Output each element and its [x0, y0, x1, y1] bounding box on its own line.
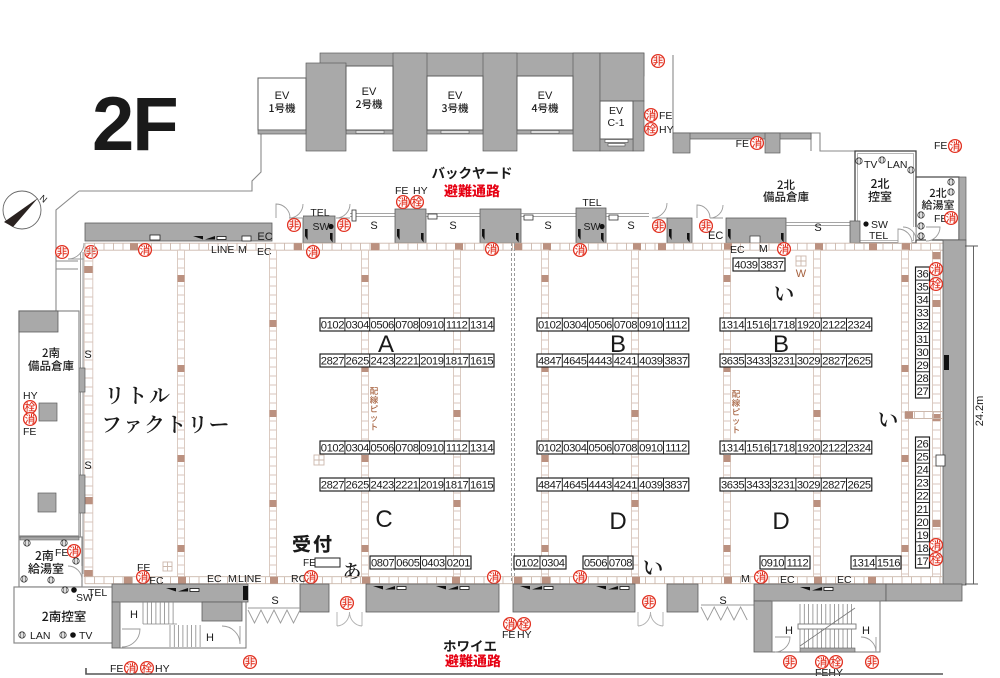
- svg-text:0506: 0506: [584, 557, 607, 569]
- svg-text:3029: 3029: [797, 355, 820, 367]
- svg-text:4039: 4039: [639, 355, 662, 367]
- svg-text:TV: TV: [79, 630, 92, 642]
- svg-text:TEL: TEL: [582, 197, 601, 209]
- svg-text:0102: 0102: [321, 319, 344, 331]
- svg-text:35: 35: [917, 281, 929, 293]
- svg-text:D: D: [772, 508, 789, 535]
- svg-text:3635: 3635: [721, 355, 744, 367]
- svg-text:C: C: [375, 506, 392, 533]
- svg-text:27: 27: [917, 386, 929, 398]
- svg-text:S: S: [84, 460, 91, 472]
- svg-text:TEL: TEL: [869, 230, 888, 242]
- svg-text:33: 33: [917, 308, 929, 320]
- svg-text:17: 17: [917, 556, 929, 568]
- svg-text:4241: 4241: [614, 355, 637, 367]
- svg-text:1817: 1817: [445, 479, 468, 491]
- svg-text:3433: 3433: [746, 479, 769, 491]
- svg-text:EC: EC: [708, 230, 723, 242]
- svg-text:FE: FE: [736, 138, 749, 150]
- svg-text:C-1: C-1: [608, 117, 625, 129]
- svg-text:0506: 0506: [371, 442, 394, 454]
- svg-text:3433: 3433: [746, 355, 769, 367]
- svg-text:1314: 1314: [721, 319, 744, 331]
- svg-text:2423: 2423: [371, 355, 394, 367]
- svg-text:4443: 4443: [589, 479, 612, 491]
- svg-text:S: S: [84, 349, 91, 361]
- svg-text:EC: EC: [730, 244, 745, 256]
- svg-text:4847: 4847: [538, 355, 561, 367]
- svg-text:EC: EC: [207, 573, 222, 585]
- svg-text:34: 34: [917, 295, 929, 307]
- svg-text:M: M: [228, 573, 237, 585]
- svg-text:TV: TV: [864, 159, 877, 171]
- svg-text:3635: 3635: [721, 479, 744, 491]
- svg-text:FEHY: FEHY: [815, 667, 843, 678]
- svg-text:3837: 3837: [760, 259, 783, 271]
- svg-text:4039: 4039: [734, 259, 757, 271]
- svg-text:4241: 4241: [614, 479, 637, 491]
- svg-text:36: 36: [917, 268, 929, 280]
- svg-text:EV: EV: [448, 90, 463, 102]
- svg-text:3029: 3029: [797, 479, 820, 491]
- svg-text:1718: 1718: [772, 442, 795, 454]
- svg-text:1718: 1718: [772, 319, 795, 331]
- svg-text:FE: FE: [659, 110, 672, 122]
- svg-text:3837: 3837: [664, 355, 687, 367]
- svg-text:TEL: TEL: [88, 587, 107, 599]
- svg-text:1112: 1112: [665, 319, 687, 331]
- svg-text:EV: EV: [362, 86, 377, 98]
- svg-text:0102: 0102: [515, 557, 538, 569]
- svg-text:2827: 2827: [822, 479, 845, 491]
- svg-text:0708: 0708: [395, 319, 418, 331]
- svg-text:0708: 0708: [609, 557, 632, 569]
- svg-text:S: S: [627, 220, 634, 232]
- svg-text:S: S: [271, 595, 278, 607]
- svg-text:EV: EV: [609, 105, 623, 117]
- svg-text:1112: 1112: [446, 442, 468, 454]
- svg-text:H: H: [862, 625, 870, 637]
- svg-text:2019: 2019: [420, 355, 443, 367]
- svg-text:30: 30: [917, 347, 929, 359]
- svg-text:2221: 2221: [395, 355, 418, 367]
- svg-text:1516: 1516: [746, 442, 769, 454]
- svg-text:3231: 3231: [772, 479, 795, 491]
- svg-text:0910: 0910: [639, 442, 662, 454]
- svg-text:0304: 0304: [346, 319, 369, 331]
- svg-text:1920: 1920: [797, 442, 820, 454]
- svg-text:W: W: [796, 268, 807, 280]
- svg-text:3837: 3837: [664, 479, 687, 491]
- svg-text:S: S: [370, 220, 377, 232]
- svg-text:2122: 2122: [822, 442, 845, 454]
- svg-text:EC: EC: [257, 231, 272, 243]
- svg-text:0708: 0708: [395, 442, 418, 454]
- svg-text:32: 32: [917, 321, 929, 333]
- svg-text:1615: 1615: [470, 355, 493, 367]
- svg-text:2324: 2324: [847, 319, 870, 331]
- svg-text:FE: FE: [23, 426, 36, 438]
- svg-text:FE: FE: [934, 140, 947, 152]
- svg-text:0304: 0304: [563, 442, 586, 454]
- svg-text:0910: 0910: [420, 442, 443, 454]
- svg-text:31: 31: [917, 334, 929, 346]
- svg-text:2019: 2019: [420, 479, 443, 491]
- svg-text:22: 22: [917, 491, 929, 503]
- svg-text:S: S: [544, 220, 551, 232]
- svg-text:2827: 2827: [321, 479, 344, 491]
- svg-text:0304: 0304: [541, 557, 564, 569]
- svg-text:28: 28: [917, 373, 929, 385]
- svg-text:1314: 1314: [721, 442, 744, 454]
- svg-text:HY: HY: [517, 629, 532, 641]
- svg-text:0605: 0605: [396, 557, 419, 569]
- svg-text:0304: 0304: [346, 442, 369, 454]
- svg-text:M: M: [759, 243, 768, 255]
- svg-text:4847: 4847: [538, 479, 561, 491]
- svg-text:SW: SW: [584, 221, 601, 233]
- svg-text:S: S: [814, 222, 821, 234]
- svg-text:18: 18: [917, 543, 929, 555]
- svg-text:0506: 0506: [589, 319, 612, 331]
- svg-text:0102: 0102: [538, 442, 561, 454]
- svg-text:0910: 0910: [420, 319, 443, 331]
- svg-text:FE: FE: [502, 629, 515, 641]
- svg-text:4443: 4443: [589, 355, 612, 367]
- svg-text:S: S: [449, 220, 456, 232]
- svg-text:0102: 0102: [538, 319, 561, 331]
- svg-text:HY: HY: [659, 124, 674, 136]
- svg-text:M: M: [741, 573, 750, 585]
- svg-text:0102: 0102: [321, 442, 344, 454]
- svg-text:1112: 1112: [665, 442, 687, 454]
- svg-text:2827: 2827: [321, 355, 344, 367]
- svg-text:1314: 1314: [470, 319, 493, 331]
- svg-text:H: H: [130, 609, 138, 621]
- svg-text:LAN: LAN: [887, 159, 907, 171]
- svg-text:24: 24: [917, 465, 929, 477]
- svg-text:2625: 2625: [847, 479, 870, 491]
- svg-text:2827: 2827: [822, 355, 845, 367]
- svg-text:TEL: TEL: [310, 207, 329, 219]
- svg-text:LAN: LAN: [30, 630, 50, 642]
- svg-text:2F: 2F: [92, 82, 177, 167]
- svg-text:0910: 0910: [639, 319, 662, 331]
- svg-text:0403: 0403: [421, 557, 444, 569]
- svg-text:2625: 2625: [346, 355, 369, 367]
- svg-text:0506: 0506: [371, 319, 394, 331]
- svg-text:0201: 0201: [447, 557, 470, 569]
- svg-text:1920: 1920: [797, 319, 820, 331]
- svg-text:LINE: LINE: [211, 244, 234, 256]
- svg-text:2625: 2625: [847, 355, 870, 367]
- svg-text:1112: 1112: [787, 557, 809, 569]
- svg-text:4645: 4645: [563, 479, 586, 491]
- svg-text:D: D: [609, 508, 626, 535]
- svg-text:25: 25: [917, 451, 929, 463]
- svg-text:0708: 0708: [614, 442, 637, 454]
- svg-text:2324: 2324: [847, 442, 870, 454]
- svg-text:0807: 0807: [371, 557, 394, 569]
- svg-text:1112: 1112: [446, 319, 468, 331]
- svg-text:EV: EV: [538, 90, 553, 102]
- svg-text:H: H: [785, 625, 793, 637]
- svg-text:S: S: [719, 595, 726, 607]
- svg-text:1314: 1314: [852, 557, 875, 569]
- svg-text:1516: 1516: [746, 319, 769, 331]
- svg-text:29: 29: [917, 360, 929, 372]
- svg-text:H: H: [206, 632, 214, 644]
- svg-text:LINE: LINE: [238, 573, 261, 585]
- svg-text:4645: 4645: [563, 355, 586, 367]
- svg-text:24.2m: 24.2m: [974, 396, 986, 427]
- svg-text:26: 26: [917, 438, 929, 450]
- svg-text:SW: SW: [313, 221, 330, 233]
- svg-text:1817: 1817: [445, 355, 468, 367]
- svg-text:1516: 1516: [877, 557, 900, 569]
- svg-text:3231: 3231: [772, 355, 795, 367]
- svg-text:1615: 1615: [470, 479, 493, 491]
- svg-text:0910: 0910: [761, 557, 784, 569]
- svg-text:M: M: [238, 244, 247, 256]
- svg-text:4039: 4039: [639, 479, 662, 491]
- svg-text:2122: 2122: [822, 319, 845, 331]
- svg-text:FE: FE: [303, 558, 316, 569]
- svg-text:2221: 2221: [395, 479, 418, 491]
- svg-text:0506: 0506: [589, 442, 612, 454]
- svg-text:1314: 1314: [470, 442, 493, 454]
- svg-text:2625: 2625: [346, 479, 369, 491]
- svg-text:FE: FE: [55, 547, 68, 559]
- svg-text:23: 23: [917, 478, 929, 490]
- svg-text:19: 19: [917, 530, 929, 542]
- svg-text:21: 21: [917, 504, 929, 516]
- svg-text:0304: 0304: [563, 319, 586, 331]
- svg-text:0708: 0708: [614, 319, 637, 331]
- svg-text:EV: EV: [275, 90, 290, 102]
- svg-text:20: 20: [917, 517, 929, 529]
- svg-text:2423: 2423: [371, 479, 394, 491]
